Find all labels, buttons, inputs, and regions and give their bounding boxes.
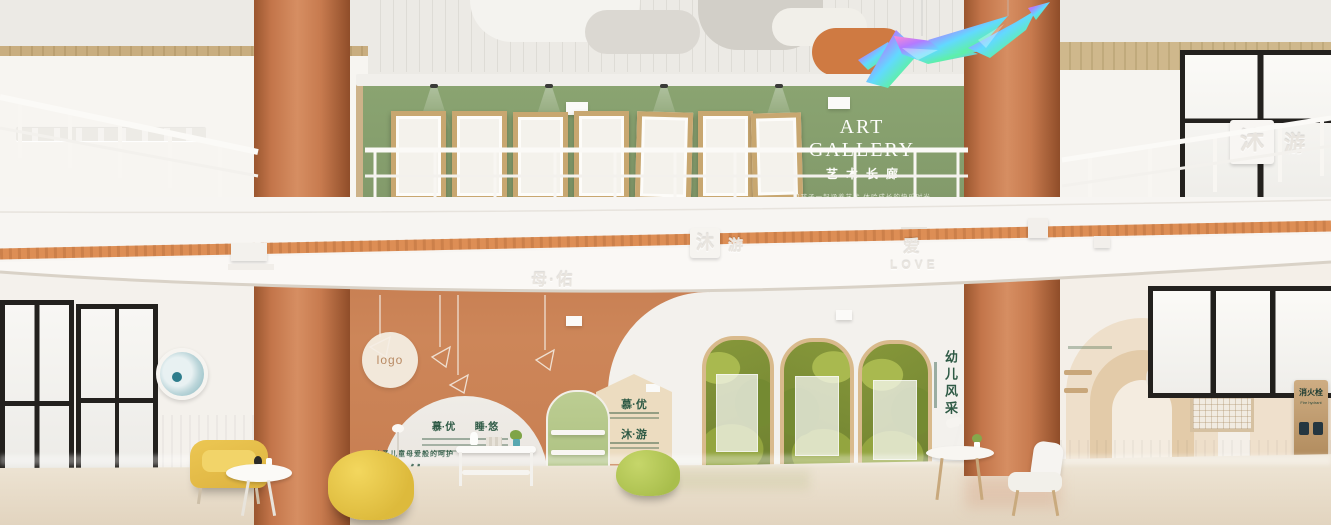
side-table-right-leg-2 (975, 458, 983, 500)
console-leg-right (530, 452, 533, 486)
fascia-right-block (1028, 218, 1048, 238)
lounge-chair-white (998, 442, 1068, 520)
fascia-left-plaque-bar (228, 264, 274, 270)
side-table-right-top (926, 446, 994, 460)
railing-left-top (0, 97, 258, 152)
side-table-leg-1 (241, 480, 250, 516)
lounge-chair-leg-2 (1052, 490, 1059, 516)
fascia-tile-main-char: 沐 (696, 233, 714, 253)
console-shelf (462, 470, 530, 475)
console-leg-left (459, 452, 462, 486)
fascia-brand-text: 母·佑 (531, 266, 574, 290)
armchair-leg-1 (197, 488, 202, 504)
side-table-right (926, 418, 994, 508)
holographic-crane-sculpture (858, 0, 1053, 92)
side-table-top (226, 464, 292, 482)
love-cn-char: 爱 (903, 232, 920, 257)
fascia-left-plaque (231, 243, 267, 261)
deer-figurine (470, 432, 478, 445)
fascia-tile: 沐 (690, 228, 720, 258)
side-table-leg-2 (267, 480, 276, 516)
railing-right-top (1062, 118, 1331, 160)
beanbag-yellow (328, 450, 414, 520)
desk-lamp-arm (953, 424, 962, 448)
fascia-right-tile (1094, 236, 1110, 248)
fascia-tile-sub-char: 游 (728, 234, 743, 255)
console-books (486, 437, 502, 446)
love-en-text: LOVE (890, 258, 939, 272)
side-table-left (226, 458, 292, 518)
side-table-right-leg-1 (935, 458, 943, 500)
lounge-chair-leg-1 (1012, 490, 1019, 516)
atrium-render: 沐 游 ART GALLERY 艺术长廊 和孩子一起涵养艺术 体验成长的快乐时光 (0, 0, 1331, 525)
beanbag-green (616, 450, 680, 496)
console-table (456, 436, 536, 488)
console-top (456, 446, 536, 453)
love-topline (901, 227, 927, 229)
